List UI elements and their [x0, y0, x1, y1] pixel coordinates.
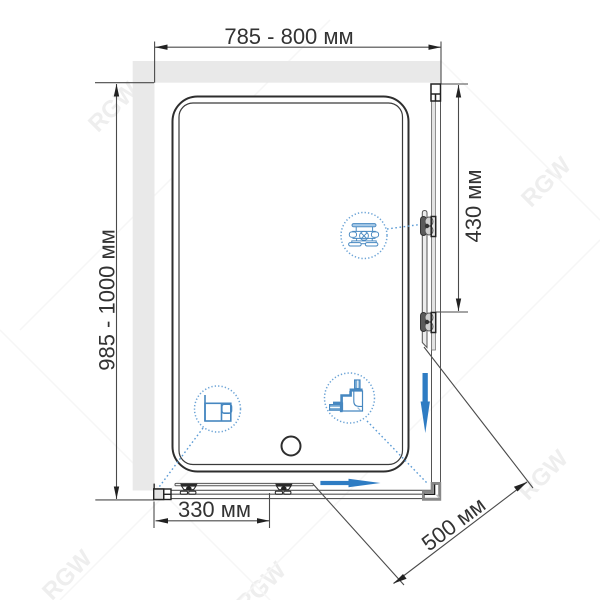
svg-text:330 мм: 330 мм — [178, 497, 251, 522]
svg-text:430 мм: 430 мм — [461, 169, 486, 242]
svg-text:785 - 800 мм: 785 - 800 мм — [224, 24, 353, 49]
svg-text:985 - 1000 мм: 985 - 1000 мм — [95, 229, 120, 371]
